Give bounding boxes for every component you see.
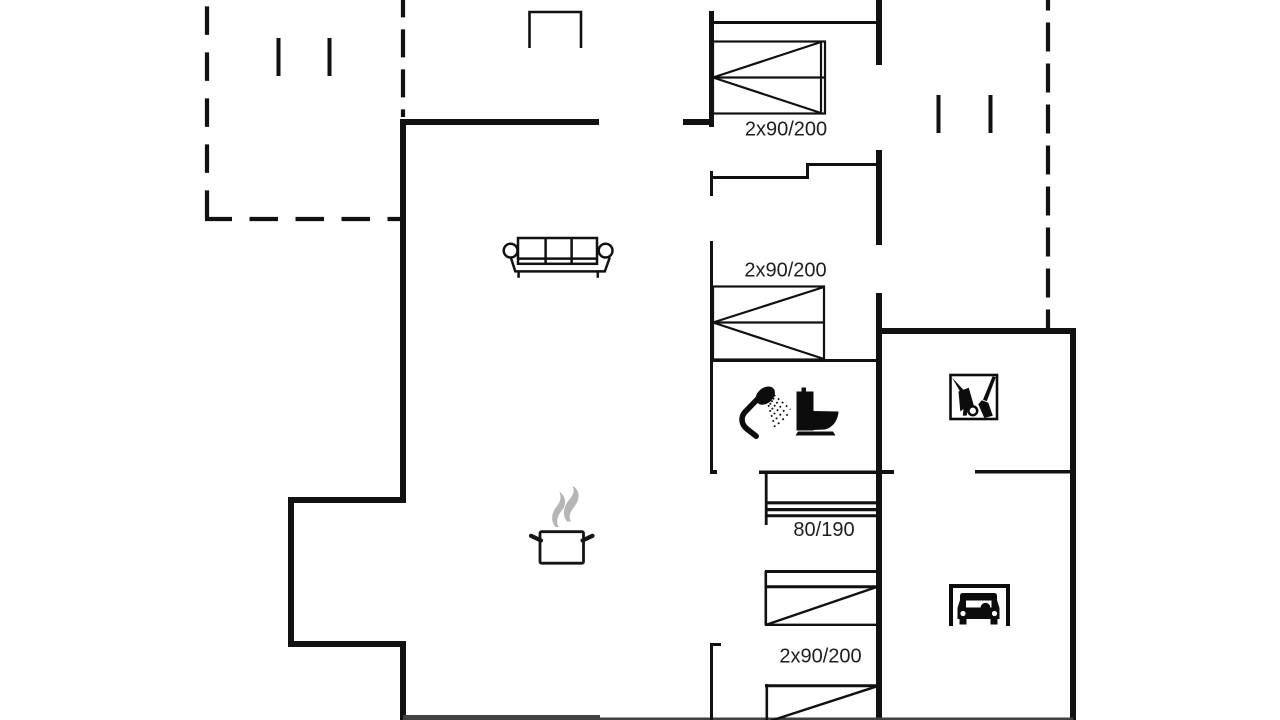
svg-text:80/190: 80/190 (793, 519, 854, 541)
svg-text:2x90/200: 2x90/200 (744, 260, 826, 282)
svg-text:2x90/200: 2x90/200 (745, 119, 827, 141)
svg-text:2x90/200: 2x90/200 (779, 646, 861, 668)
